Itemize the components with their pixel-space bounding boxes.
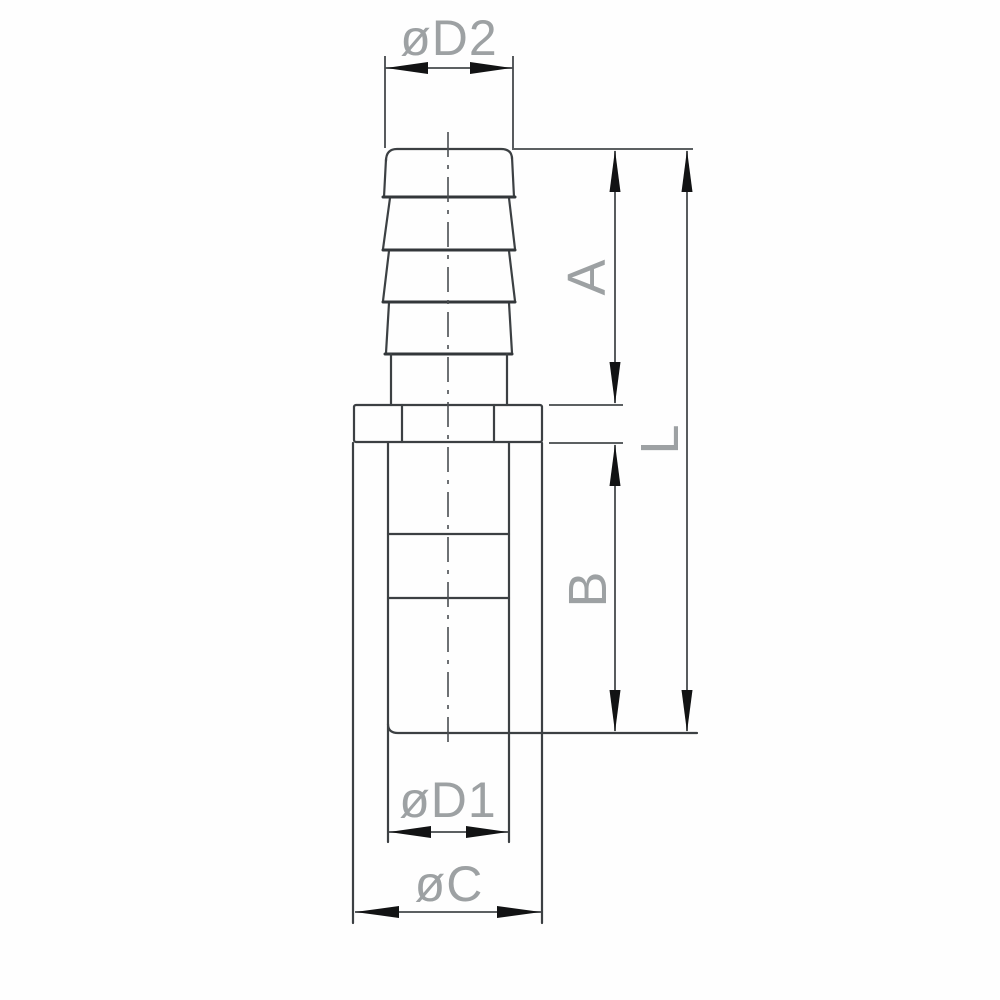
dim-label-c: øC [415,856,484,912]
dimension-b: B [549,443,623,732]
dim-label-d2: øD2 [400,10,497,66]
technical-drawing-hose-barb-fitting: øD2 A L B [0,0,1000,1000]
hose-barb-section [383,149,515,405]
b-arrowhead-down [610,690,621,732]
l-arrowhead-up [682,150,693,192]
barb-top-edge [386,149,512,161]
barb-right-profile [509,157,515,353]
dimension-c: øC [355,856,541,918]
a-arrowhead-down [610,362,621,404]
drawing-canvas: øD2 A L B [0,0,1000,1000]
b-arrowhead-up [610,444,621,486]
dimension-l: L [630,150,693,732]
barb-ridge-lines [383,197,515,354]
c-arrowhead-left [355,906,399,918]
barb-left-profile [383,159,390,353]
dimension-d1: øD1 [389,772,508,838]
dim-label-b: B [558,570,618,607]
dimension-a: A [512,149,693,405]
dimension-d2: øD2 [385,10,513,148]
c-arrowhead-right [497,906,541,918]
barb-neck [391,354,507,405]
l-arrowhead-down [682,690,693,732]
socket-body-section [353,443,697,923]
a-arrowhead-up [610,150,621,192]
dim-label-l: L [630,423,690,454]
dim-label-a: A [557,258,617,295]
dim-label-d1: øD1 [399,772,496,828]
